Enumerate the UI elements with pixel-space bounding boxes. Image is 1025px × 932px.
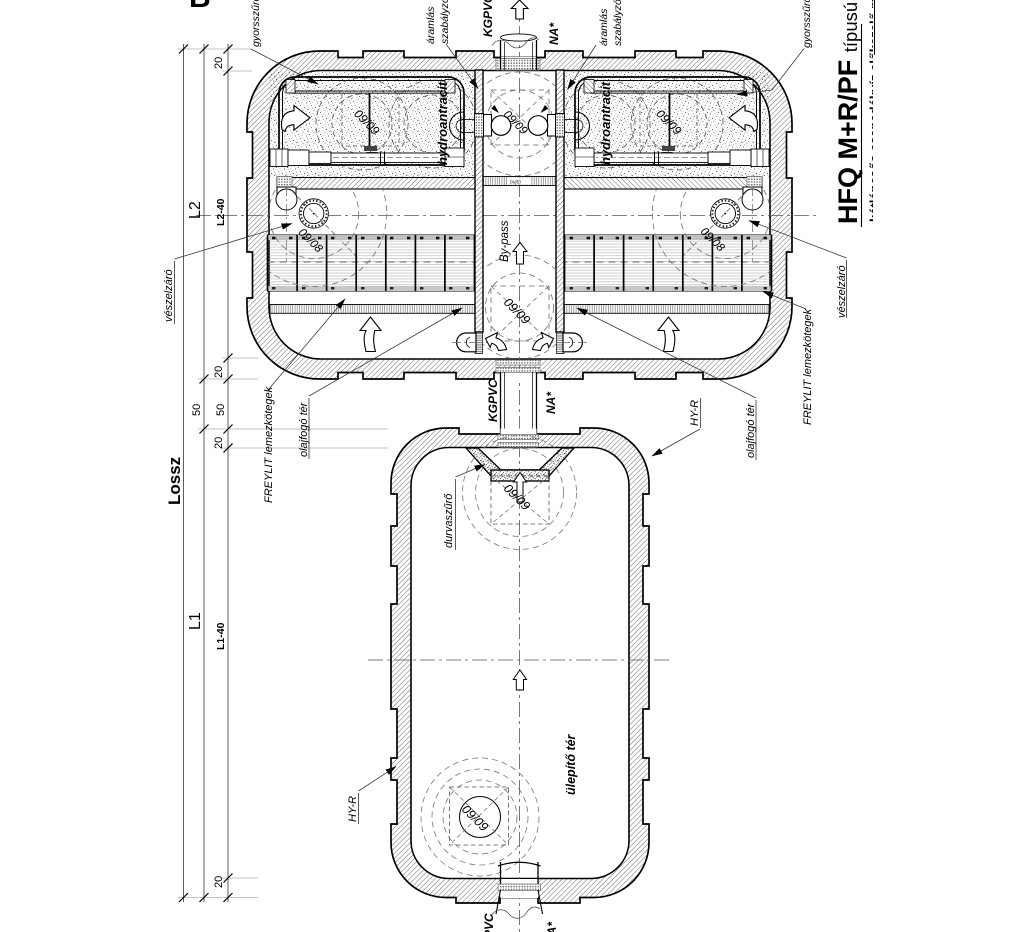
svg-text:NA*: NA*	[544, 391, 558, 414]
svg-text:hydroantracit: hydroantracit	[435, 81, 450, 165]
svg-text:HY-R: HY-R	[347, 796, 359, 822]
svg-text:olajfogó tér: olajfogó tér	[298, 401, 310, 457]
svg-text:KGPVC: KGPVC	[482, 913, 496, 932]
svg-text:bujtó: bujtó	[510, 180, 521, 186]
svg-text:NA*: NA*	[545, 921, 559, 932]
svg-text:FREYLIT lemezkötegek: FREYLIT lemezkötegek	[263, 386, 275, 503]
svg-text:KGPVC: KGPVC	[481, 0, 495, 37]
svg-text:20: 20	[213, 437, 225, 449]
svg-text:szabályzó: szabályzó	[612, 0, 624, 46]
svg-text:olajfogó tér: olajfogó tér	[745, 402, 757, 458]
svg-text:20: 20	[213, 57, 225, 69]
svg-text:L1: L1	[187, 612, 204, 630]
svg-text:hydroantracit: hydroantracit	[598, 81, 613, 165]
svg-text:durvaszűrő: durvaszűrő	[443, 493, 455, 548]
svg-text:50: 50	[191, 404, 203, 416]
svg-text:gyorsszűrő: gyorsszűrő	[250, 0, 262, 47]
svg-text:50: 50	[215, 404, 227, 416]
svg-text:vészelzáró: vészelzáró	[163, 269, 175, 322]
svg-text:By-pass: By-pass	[499, 220, 511, 262]
svg-text:FREYLIT lemezkötegek: FREYLIT lemezkötegek	[802, 308, 814, 425]
svg-text:L2-40: L2-40	[215, 198, 227, 226]
svg-text:HY-R: HY-R	[689, 400, 701, 426]
svg-text:20: 20	[213, 366, 225, 378]
svg-text:áramlás: áramlás	[425, 6, 437, 44]
svg-text:ülepítő tér: ülepítő tér	[564, 733, 578, 795]
svg-text:Lossz: Lossz	[165, 457, 184, 505]
svg-text:vészelzáró: vészelzáró	[836, 265, 848, 318]
svg-text:NA*: NA*	[547, 22, 561, 45]
svg-text:L1-40: L1-40	[215, 622, 227, 650]
svg-text:L2: L2	[187, 201, 204, 219]
svg-text:szabályzó: szabályzó	[439, 0, 451, 44]
svg-text:KGPVC: KGPVC	[486, 379, 500, 422]
svg-text:gyorsszűrő: gyorsszűrő	[801, 0, 813, 48]
svg-text:20: 20	[213, 876, 225, 888]
svg-text:B: B	[189, 0, 211, 14]
svg-text:áramlás: áramlás	[598, 8, 610, 46]
